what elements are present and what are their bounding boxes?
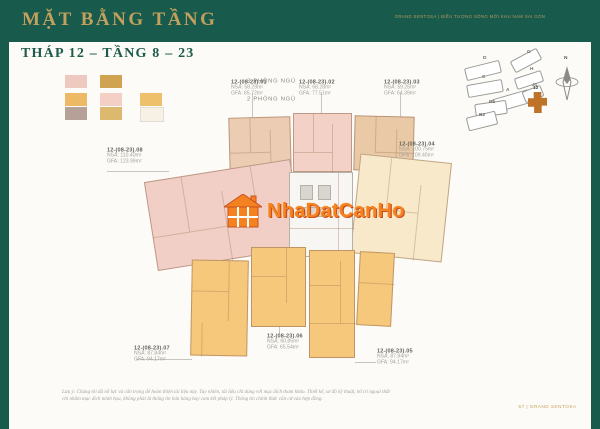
legend-swatch <box>65 75 87 88</box>
unit-gfa: GFA: 94.17m² <box>134 357 170 363</box>
brochure-page: MẶT BẰNG TẦNG GRAND SENTOSA | BIỂU TƯỢNG… <box>0 0 600 429</box>
page-number: 57 | GRAND SENTOSA <box>518 405 576 410</box>
watermark-text: NhaDatCanHo <box>267 200 405 223</box>
unit-02-area <box>293 113 352 172</box>
unit-label-06: 12-(08-23).06 NSA: 60.85m² GFA: 65.54m² <box>267 333 303 351</box>
site-building-c <box>466 79 504 98</box>
site-building-label: D <box>483 56 486 61</box>
unit-label-05: 12-(08-23).05 NSA: 87.84m² GFA: 94.17m² <box>377 348 413 366</box>
unit-label-01: 12-(08-23).01 NSA: 58.29m² GFA: 65.72m² <box>231 79 267 97</box>
compass-label: N <box>564 56 567 61</box>
legend-swatch <box>100 75 122 88</box>
compass-icon <box>553 60 581 104</box>
leader-line <box>355 362 376 363</box>
legend-swatch <box>140 93 162 106</box>
site-building-label: G <box>527 50 531 55</box>
unit-label-02: 12-(08-23).02 NSA: 68.28m² GFA: 77.51m² <box>299 79 335 97</box>
brand-tagline: GRAND SENTOSA | BIỂU TƯỢNG SỐNG MỚI KHU … <box>394 15 545 19</box>
page-title: MẶT BẰNG TẦNG <box>22 9 217 31</box>
footer-note-line1: Lưu ý: Chúng tôi đã nỗ lực và cẩn trọng … <box>62 389 390 394</box>
left-border-bar <box>0 0 9 429</box>
legend-swatch <box>140 107 164 122</box>
unit-gfa: GFA: 109.40m² <box>399 153 435 159</box>
site-building-label: B2 <box>479 113 485 118</box>
legend-swatch <box>100 107 122 120</box>
site-building-g <box>510 48 543 74</box>
unit-label-04: 12-(08-23).04 NSA: 100.75m² GFA: 109.40m… <box>399 141 435 159</box>
site-building-label: H <box>530 67 533 72</box>
legend-label-2br: 2 PHÒNG NGỦ <box>247 96 296 102</box>
floor-subtitle: THÁP 12 – TẦNG 8 – 23 <box>21 46 195 62</box>
unit-gfa: GFA: 94.17m² <box>377 360 413 366</box>
unit-gfa: GFA: 77.51m² <box>299 91 335 97</box>
watermark: NhaDatCanHo <box>224 194 405 228</box>
legend-swatch <box>65 107 87 120</box>
unit-label-08: 12-(08-23).08 NSA: 110.40m² GFA: 123.99m… <box>107 147 143 165</box>
footer-note-line2: chỉ nhằm mục đích minh họa, không phải l… <box>62 396 323 401</box>
site-tower-12-label: 12 <box>533 86 538 91</box>
site-map: D G H C A J1 B1 B2 12 N <box>445 50 595 150</box>
house-icon <box>224 194 262 228</box>
unit-gfa: GFA: 64.39m² <box>384 91 420 97</box>
site-building-label: A <box>506 88 509 93</box>
unit-gfa: GFA: 65.72m² <box>231 91 267 97</box>
unit-gfa: GFA: 65.54m² <box>267 345 303 351</box>
unit-gfa: GFA: 123.99m² <box>107 159 143 165</box>
site-building-label: C <box>482 75 485 80</box>
unit-05b-area <box>356 251 395 327</box>
unit-label-03: 12-(08-23).03 NSA: 59.26m² GFA: 64.39m² <box>384 79 420 97</box>
unit-05-area <box>309 250 355 358</box>
unit-07-area <box>190 260 249 357</box>
header-band: MẶT BẰNG TẦNG GRAND SENTOSA | BIỂU TƯỢNG… <box>0 0 600 42</box>
legend-swatch <box>65 93 87 106</box>
legend-swatch <box>100 93 122 106</box>
leader-line <box>107 171 169 172</box>
site-building-label: B1 <box>489 100 495 105</box>
unit-label-07: 12-(08-23).07 NSA: 87.84m² GFA: 94.17m² <box>134 345 170 363</box>
unit-06-area <box>251 247 306 327</box>
